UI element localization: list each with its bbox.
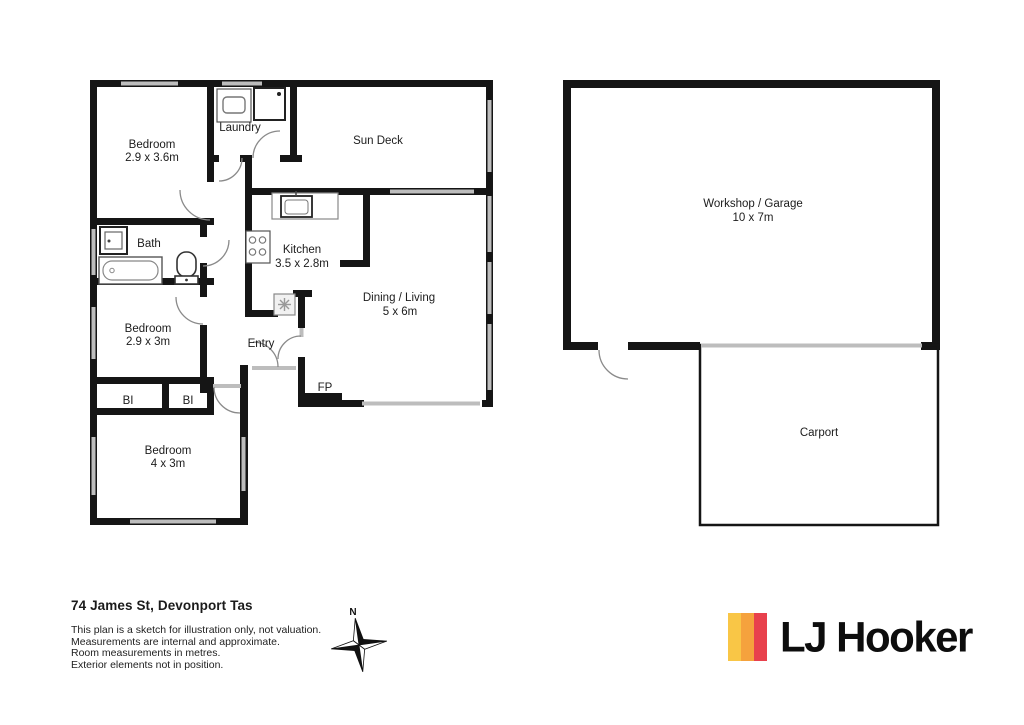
room-dims-dining-living: 5 x 6m (383, 306, 418, 318)
door-arc (203, 240, 229, 266)
kitchen-sink-icon (272, 191, 338, 219)
room-label-bath: Bath (137, 238, 161, 250)
room-label-bedroom2: Bedroom (125, 323, 172, 335)
room-label-bedroom3: Bedroom (145, 445, 192, 457)
room-labels: Bedroom 2.9 x 3.6m Laundry Sun Deck Bath… (123, 122, 839, 470)
room-label-bi-left: BI (123, 395, 134, 407)
floorplan-page: Bedroom 2.9 x 3.6m Laundry Sun Deck Bath… (0, 0, 1024, 725)
windows (92, 82, 923, 524)
disclaimer-line: Exterior elements not in position. (71, 660, 321, 672)
laundry-tub-icon (217, 89, 251, 122)
room-label-kitchen: Kitchen (283, 244, 321, 256)
door-arc (176, 297, 203, 324)
door-arc (219, 158, 242, 181)
door-arc (214, 387, 240, 413)
logo-stripe-orange (741, 613, 754, 661)
room-label-sun-deck: Sun Deck (353, 135, 403, 147)
room-label-carport: Carport (800, 427, 839, 439)
room-dims-kitchen: 3.5 x 2.8m (275, 258, 329, 270)
disclaimer: This plan is a sketch for illustration o… (71, 625, 321, 671)
room-label-laundry: Laundry (219, 122, 261, 134)
bathtub-icon (99, 257, 162, 284)
door-arc (599, 350, 628, 379)
stove-icon (246, 231, 270, 263)
room-label-workshop: Workshop / Garage (703, 198, 803, 210)
room-label-bi-right: BI (183, 395, 194, 407)
compass-star (328, 614, 391, 675)
washing-machine-icon (254, 88, 285, 120)
logo-text: LJ Hooker (780, 613, 972, 662)
disclaimer-line: This plan is a sketch for illustration o… (71, 625, 321, 637)
door-arc (278, 336, 301, 359)
address-block: 74 James St, Devonport Tas This plan is … (71, 598, 321, 671)
logo-stripe-red (754, 613, 767, 661)
basin-icon (100, 227, 127, 254)
room-label-dining-living: Dining / Living (363, 292, 435, 304)
logo-mark (728, 613, 767, 661)
hot-water-icon (274, 294, 295, 315)
room-dims-bedroom1: 2.9 x 3.6m (125, 152, 179, 164)
room-dims-workshop: 10 x 7m (733, 212, 774, 224)
logo-stripe-yellow (728, 613, 741, 661)
lj-hooker-logo: LJ Hooker (728, 612, 972, 662)
compass-rose: N (328, 607, 391, 676)
room-label-fireplace: FP (318, 382, 333, 394)
room-dims-bedroom3: 4 x 3m (151, 458, 186, 470)
north-label: N (349, 607, 356, 618)
room-dims-bedroom2: 2.9 x 3m (126, 336, 170, 348)
door-arc (180, 190, 210, 220)
address-title: 74 James St, Devonport Tas (71, 598, 321, 613)
toilet-icon (175, 252, 198, 284)
door-arc (253, 131, 280, 158)
room-label-entry: Entry (248, 338, 275, 350)
room-label-bedroom1: Bedroom (129, 139, 176, 151)
fireplace-block (300, 393, 342, 405)
